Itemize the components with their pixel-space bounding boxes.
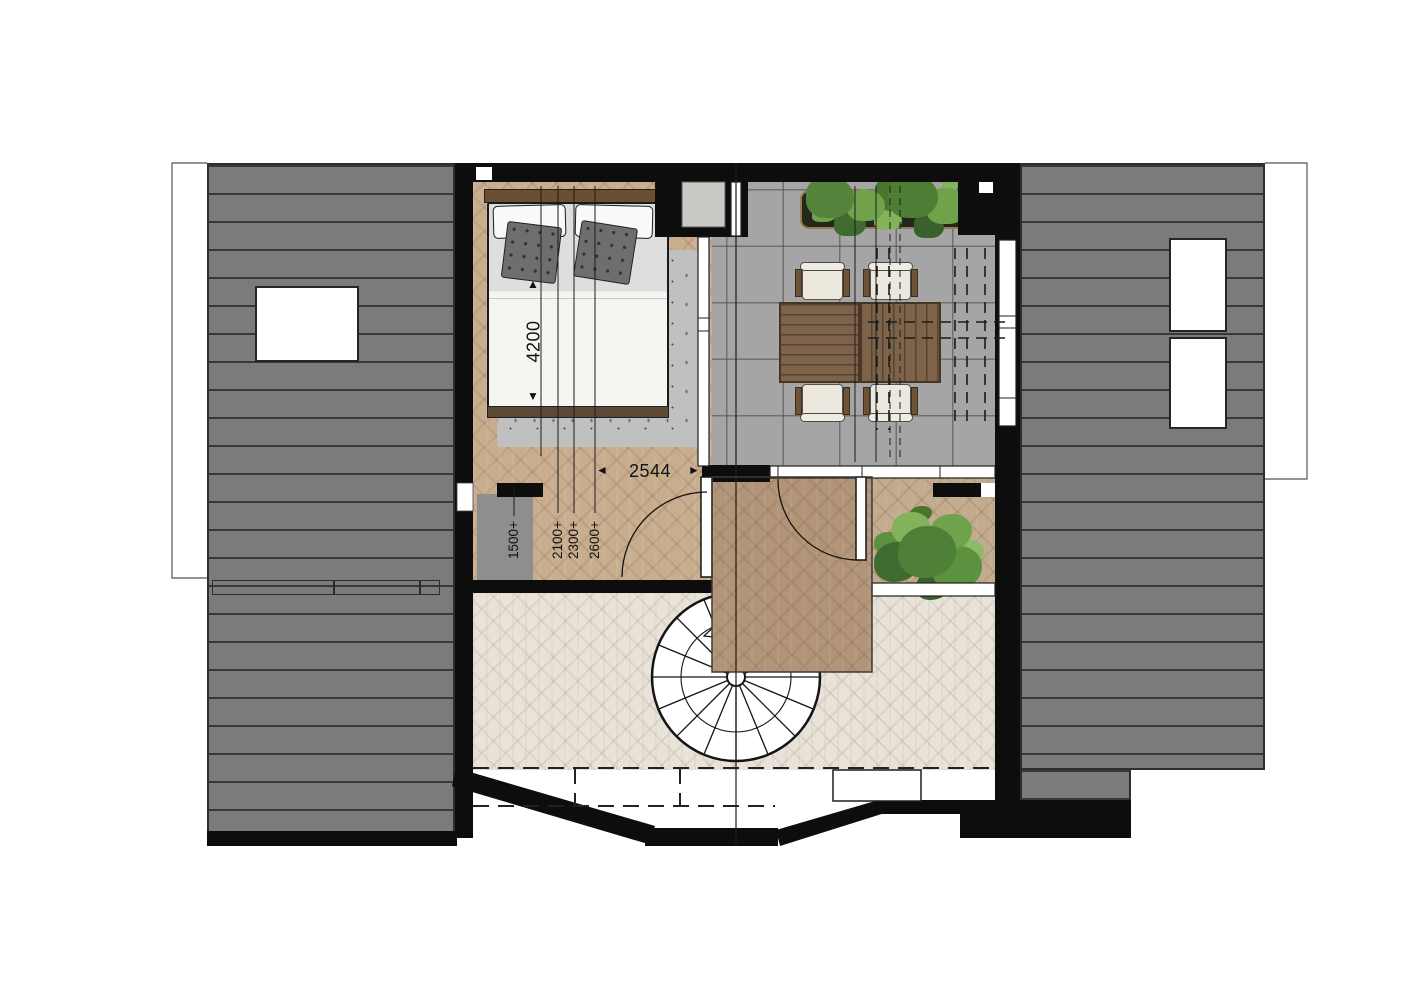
headroom-label-2300: 2300+ <box>566 513 582 567</box>
doors <box>622 477 866 577</box>
dim-arrow-right-icon: ► <box>688 464 700 476</box>
door-swing-arc <box>622 492 707 577</box>
headroom-label-1500: 1500+ <box>506 513 522 567</box>
dim-arrow-down-icon: ▼ <box>527 390 539 402</box>
walls <box>207 163 1131 846</box>
pergola-dashed-lines <box>868 248 1008 430</box>
door-leaf <box>856 477 866 560</box>
walls-lines-layer <box>0 0 1414 1000</box>
headroom-label-2600: 2600+ <box>587 513 603 567</box>
dimension-bed-length: 4200 <box>524 314 545 370</box>
dim-arrow-up-icon: ▲ <box>527 278 539 290</box>
door-swing-arc <box>778 479 858 560</box>
dimension-opening-width: 2544 <box>614 461 686 482</box>
headroom-label-2100: 2100+ <box>550 513 566 567</box>
floor-plan-canvas: 4200 ▲ ▼ 2544 ◄ ► 1500+ 2100+ 2300+ 2600… <box>0 0 1414 1000</box>
dim-arrow-left-icon: ◄ <box>596 464 608 476</box>
